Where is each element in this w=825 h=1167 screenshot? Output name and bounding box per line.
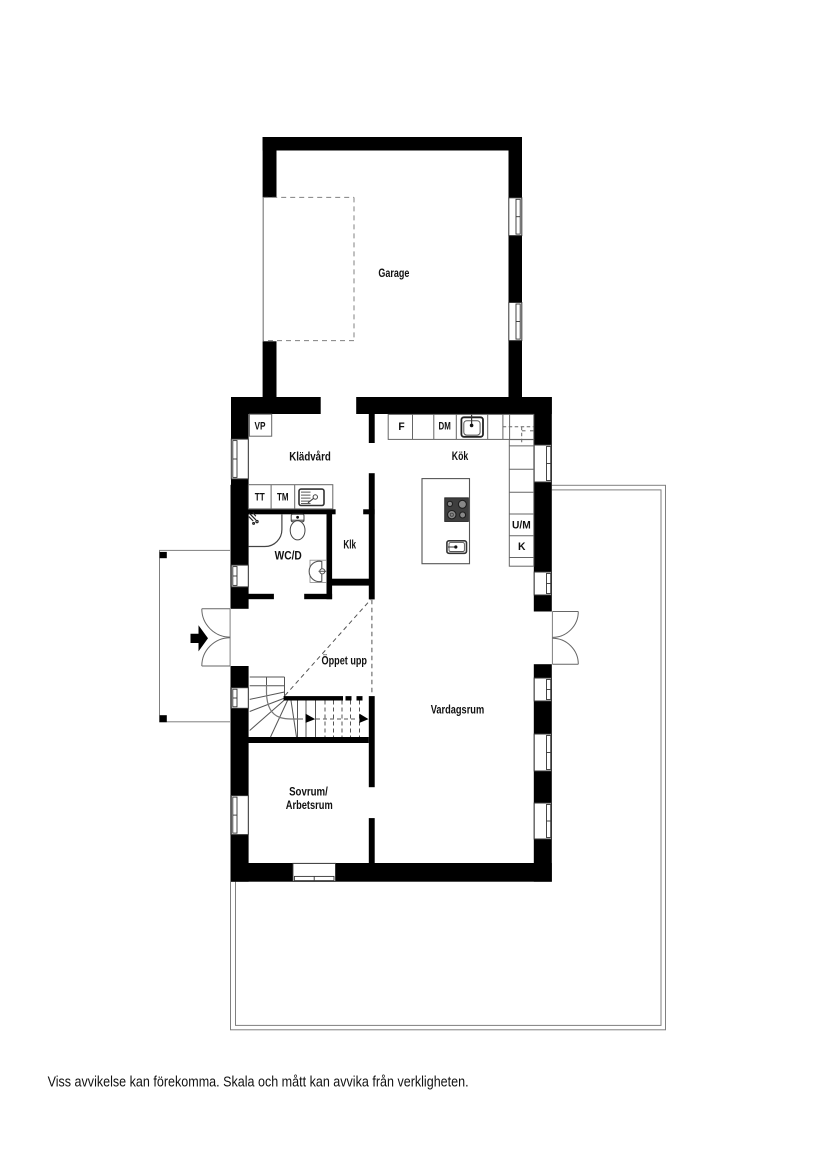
svg-text:Sovrum/: Sovrum/	[289, 787, 328, 799]
svg-text:DM: DM	[439, 421, 451, 433]
svg-text:K: K	[518, 541, 526, 553]
svg-text:Kök: Kök	[452, 451, 469, 463]
svg-text:U/M: U/M	[512, 519, 531, 531]
svg-text:Klädvård: Klädvård	[289, 452, 331, 464]
svg-text:Viss avvikelse kan förekomma.: Viss avvikelse kan förekomma. Skala och …	[48, 1073, 469, 1090]
svg-text:TM: TM	[277, 491, 289, 503]
svg-text:WC/D: WC/D	[275, 550, 302, 562]
svg-text:Öppet upp: Öppet upp	[322, 655, 368, 668]
svg-text:F: F	[398, 421, 405, 433]
svg-text:Klk: Klk	[343, 540, 356, 552]
svg-text:TT: TT	[255, 491, 265, 503]
svg-text:VP: VP	[255, 421, 266, 433]
svg-text:Garage: Garage	[378, 268, 409, 280]
svg-text:Arbetsrum: Arbetsrum	[286, 800, 333, 812]
svg-text:Vardagsrum: Vardagsrum	[431, 705, 485, 717]
